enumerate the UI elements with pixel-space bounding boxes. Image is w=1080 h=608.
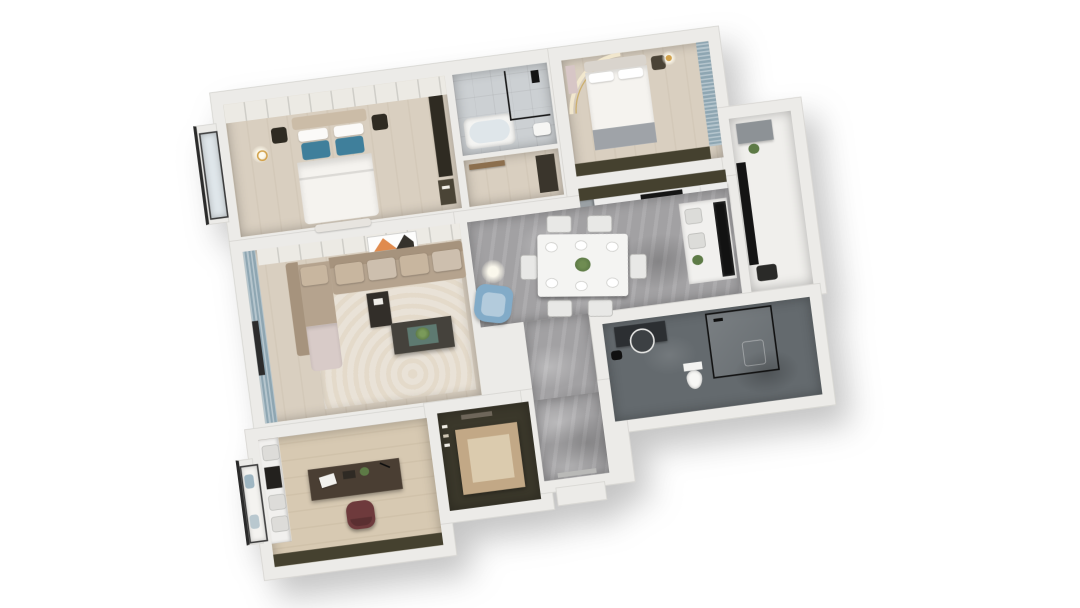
balcony-cabinet [736,119,774,144]
floor-plan [187,9,864,588]
desk-chair [345,499,377,531]
sofa-cushion-1 [334,261,364,285]
dining-chair-top-2 [587,215,612,232]
vestibule-cabinet [535,153,558,193]
desk-chair-back [350,517,373,528]
bedroom2-pillow-left [588,71,614,84]
laptop [319,473,337,488]
shelf-cubby-1 [684,207,703,225]
armchair-seat [480,292,506,318]
shower-head [713,318,723,322]
dining-set [520,215,646,316]
sofa-cushion-3 [399,253,429,277]
black-shower-fixture [530,70,539,83]
plate-6 [606,277,619,287]
desk-plant [359,467,369,477]
dining-chair-left [520,255,537,280]
window-seat-textile-1 [244,474,255,489]
toilet-bowl [686,369,704,390]
plate-1 [545,242,558,252]
toilet [683,361,705,393]
tv-niche [264,466,282,490]
bookshelf-cubby-3 [271,515,290,533]
sofa-cushion-2 [367,257,397,281]
sofa-cushion-4 [432,249,462,273]
glass-shower [705,305,780,379]
plant-centerpiece [575,257,591,271]
room-living [243,223,482,423]
bathroom-sink [533,122,552,137]
chaise-pink-seat [306,323,343,372]
hanging-clothes-1 [442,425,448,429]
room-walk-in-closet [437,402,541,511]
dining-chair-top-1 [546,216,571,233]
plate-3 [606,242,619,252]
plate-5 [575,281,588,291]
closet-shelf-items [461,411,493,420]
plate-2 [575,240,588,250]
window-seat-textile-2 [249,514,260,529]
shelf-cubby-2 [687,232,706,250]
blue-armchair [473,283,514,324]
render-canvas [0,0,1080,608]
bedroom-console [438,179,457,206]
bookshelf-cubby-2 [268,493,287,511]
side-table-item [373,298,383,305]
bedroom2-gray-throw [593,122,658,150]
door-leaf [469,160,505,170]
chaise-cushion [300,264,329,286]
room-bedroom-2 [561,41,723,176]
dining-chair-right [629,254,646,279]
balcony-dark-unit [756,263,778,281]
room-study [258,418,443,567]
bedroom2-bed [585,65,657,150]
double-bed [291,108,379,224]
desk-lamp [380,462,391,468]
hanging-clothes-3 [444,443,450,447]
glass-shower-screen-h [510,114,550,121]
desk [308,458,403,501]
pillow-blue-right [335,135,365,156]
dining-chair-bottom-1 [547,300,572,317]
dining-table [537,234,628,297]
bookshelf-cubby-1 [261,444,280,462]
duvet [297,153,379,225]
hanging-clothes-2 [443,434,449,438]
vanity-stool [611,350,623,361]
shower-tray-item [742,339,767,367]
nightstand-left [271,127,289,145]
nightstand-right [371,113,389,131]
room-bathroom-top [452,62,557,156]
shelf-plant [692,254,704,265]
plate-4 [545,278,558,288]
bedroom2-pillow-right [618,67,644,80]
dining-chair-bottom-2 [588,299,613,316]
side-table [366,291,392,328]
closet-rug-inner [467,434,514,483]
balcony-plant [748,143,760,154]
pillow-blue-left [301,140,331,161]
shelf-cabinet [679,198,738,285]
room-entry [534,392,610,481]
desk-books [342,470,355,479]
